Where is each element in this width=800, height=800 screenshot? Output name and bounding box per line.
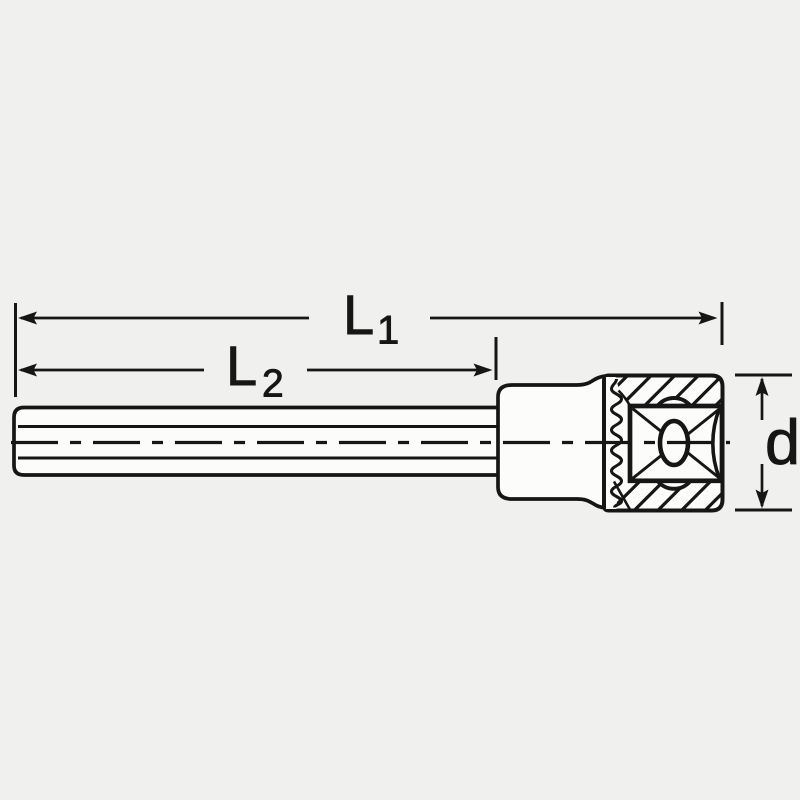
svg-text:L: L (343, 283, 374, 346)
svg-text:L: L (226, 334, 257, 397)
svg-text:d: d (765, 408, 800, 478)
svg-text:1: 1 (377, 309, 399, 353)
svg-text:2: 2 (262, 363, 284, 406)
